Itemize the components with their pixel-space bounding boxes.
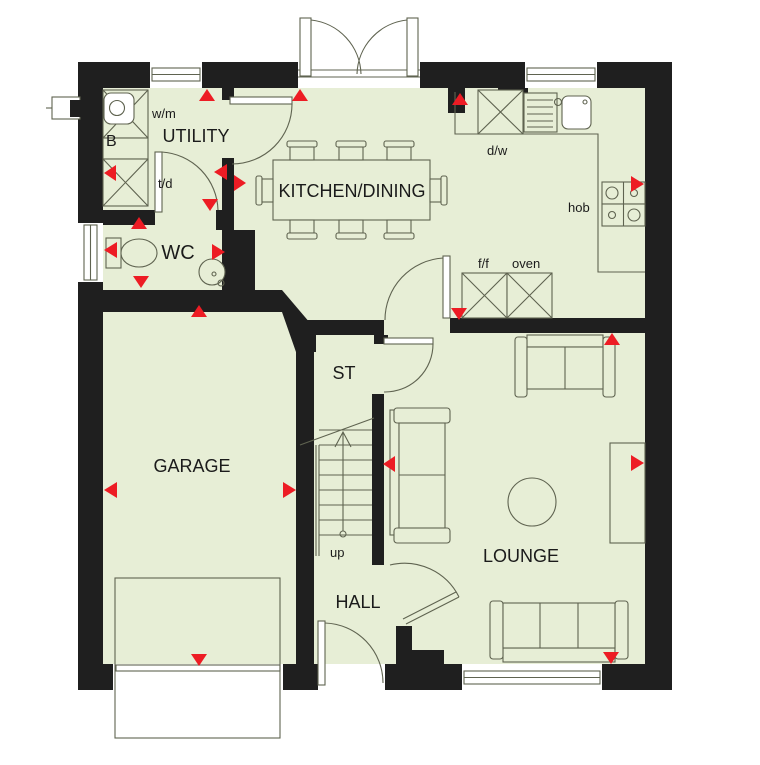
dishwasher-unit bbox=[478, 90, 523, 134]
sofa-two-seat-top bbox=[515, 335, 615, 397]
wc-basin bbox=[199, 259, 225, 286]
boiler-sink bbox=[104, 93, 134, 124]
room-label-utility: UTILITY bbox=[162, 126, 229, 146]
window-utility bbox=[150, 62, 202, 88]
room-label-garage: GARAGE bbox=[153, 456, 230, 476]
hob-unit bbox=[602, 182, 645, 226]
appliance-label-hob: hob bbox=[568, 200, 590, 215]
room-label-lounge: LOUNGE bbox=[483, 546, 559, 566]
appliance-label-washing-machine: w/m bbox=[151, 106, 176, 121]
appliance-label-dishwasher: d/w bbox=[487, 143, 508, 158]
room-label-hall: HALL bbox=[335, 592, 380, 612]
window-lounge bbox=[462, 664, 602, 690]
stairs-up-label: up bbox=[330, 545, 344, 560]
appliance-label-oven: oven bbox=[512, 256, 540, 271]
window-kitchen bbox=[525, 62, 597, 88]
fridge-freezer-unit bbox=[462, 273, 507, 318]
floor-plan-page: UTILITY WC KITCHEN/DINING GARAGE ST HALL… bbox=[0, 0, 760, 760]
appliance-label-boiler: B bbox=[106, 133, 117, 150]
oven-unit bbox=[507, 273, 552, 318]
tumble-dryer-unit bbox=[103, 159, 148, 206]
room-label-store: ST bbox=[332, 363, 355, 383]
tv-unit bbox=[610, 443, 645, 543]
coffee-table bbox=[508, 478, 556, 526]
appliance-label-tumble-dryer: t/d bbox=[158, 176, 172, 191]
appliance-label-fridge-freezer: f/f bbox=[478, 256, 489, 271]
room-label-wc: WC bbox=[161, 242, 194, 264]
sink-unit bbox=[524, 93, 591, 132]
room-label-kitchen-dining: KITCHEN/DINING bbox=[278, 181, 425, 201]
floor-plan: UTILITY WC KITCHEN/DINING GARAGE ST HALL… bbox=[0, 0, 760, 760]
sofa-two-seat-side bbox=[390, 408, 450, 543]
french-doors bbox=[298, 18, 420, 88]
window-wc bbox=[78, 223, 103, 282]
external-meter-box bbox=[46, 97, 83, 119]
